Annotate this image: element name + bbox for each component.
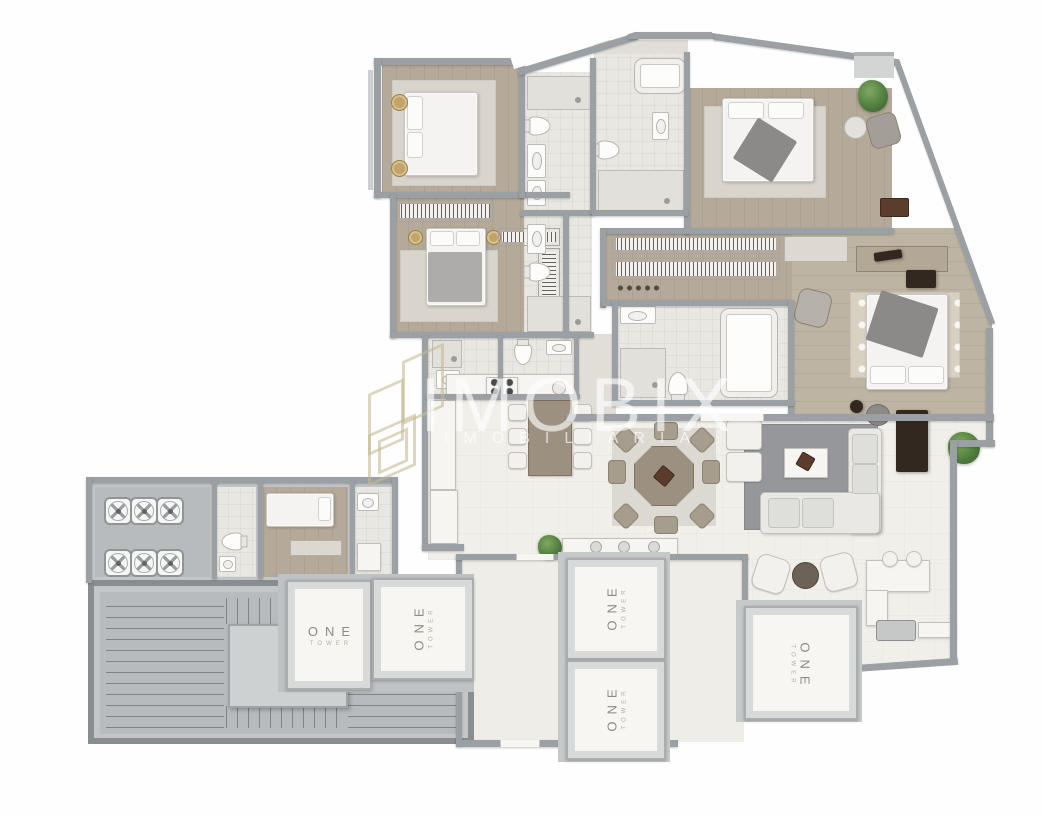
- sofa-cushion: [852, 464, 878, 494]
- bathtub: [634, 58, 686, 94]
- elevator-cabin: ONE TOWER: [744, 606, 858, 720]
- elevator-sublabel: TOWER: [428, 606, 434, 652]
- shoe-row: [616, 284, 660, 293]
- entry-door: [500, 740, 540, 747]
- wall: [374, 58, 381, 198]
- dining-chair: [702, 460, 720, 484]
- wall: [390, 194, 396, 338]
- wall: [374, 58, 526, 65]
- bbq-grill: [876, 620, 916, 641]
- sink: [546, 340, 572, 355]
- window-strip: [368, 70, 373, 190]
- ac-condenser: [156, 549, 184, 577]
- wall: [684, 52, 690, 234]
- washing-machine: [357, 543, 381, 571]
- elevator-cab: ONE TOWER: [381, 587, 465, 671]
- bathroom-vanity: [652, 112, 669, 140]
- wall: [350, 481, 355, 579]
- shower: [527, 296, 591, 332]
- wall: [628, 32, 718, 39]
- elevator-cabin: ONE TOWER: [566, 660, 666, 760]
- watermark-subtitle: IMOBILIÁRIA: [444, 430, 705, 448]
- wall: [600, 228, 606, 308]
- terrace-counter: [866, 560, 930, 592]
- elevator-label: ONE: [604, 581, 619, 637]
- bed-pillow: [728, 102, 764, 119]
- side-table: [844, 116, 867, 139]
- bed-pillow: [768, 102, 804, 119]
- wall: [520, 210, 594, 216]
- chair: [508, 452, 527, 469]
- elevator-sublabel: TOWER: [789, 640, 795, 686]
- bed-pillow: [430, 231, 454, 246]
- closet-rack: [612, 234, 780, 254]
- wall: [986, 328, 993, 446]
- bench: [290, 540, 342, 556]
- closet-rack: [612, 258, 780, 280]
- wall: [374, 192, 570, 198]
- elevator-cabin: ONE TOWER: [566, 558, 666, 660]
- wall: [590, 58, 596, 214]
- wall: [602, 228, 894, 234]
- bed-pillow: [318, 497, 331, 521]
- wall: [86, 477, 92, 583]
- floor-plan-canvas: ONE TOWER ONE TOWER ONE TOWER ONE TO: [0, 0, 1041, 816]
- elevator-label: ONE: [604, 682, 619, 738]
- shower: [527, 76, 591, 110]
- bathroom-vanity: [527, 224, 546, 254]
- sofa-cushion: [852, 434, 878, 464]
- double-vanity: [620, 306, 656, 324]
- stool: [882, 551, 898, 567]
- bed-blanket: [428, 252, 482, 302]
- wall: [422, 544, 464, 551]
- stool: [906, 551, 922, 567]
- ac-condenser: [156, 497, 184, 525]
- dining-chair: [608, 460, 626, 484]
- elevator-label: ONE: [411, 601, 426, 657]
- bed-pillow: [456, 231, 480, 246]
- armchair: [726, 452, 762, 482]
- nightstand-lamp: [391, 94, 408, 111]
- bed-pillow: [407, 96, 423, 130]
- sofa-cushion: [802, 498, 834, 528]
- elevator-label: ONE: [797, 635, 812, 691]
- ac-condenser: [130, 497, 158, 525]
- ac-condenser: [104, 497, 132, 525]
- dining-chair: [654, 516, 678, 534]
- elevator-sublabel: TOWER: [306, 641, 352, 647]
- bathroom-vanity: [527, 144, 546, 178]
- elevator-cabin: ONE TOWER: [286, 580, 372, 690]
- sofa-cushion: [768, 498, 800, 528]
- wall: [602, 300, 794, 306]
- nightstand-lamp: [408, 230, 423, 245]
- wall: [258, 481, 263, 579]
- plant: [858, 80, 888, 112]
- ac-condenser: [104, 549, 132, 577]
- bed-pillow: [407, 132, 423, 158]
- elevator-label: ONE: [301, 624, 357, 639]
- elevator-cab: ONE TOWER: [753, 615, 849, 711]
- wall: [563, 214, 569, 338]
- stairs-left: [106, 598, 224, 728]
- bed-pillow: [908, 366, 944, 384]
- elevator-cab: ONE TOWER: [575, 567, 657, 651]
- wall: [390, 332, 594, 338]
- terrace-table: [792, 562, 819, 589]
- elevator-cabin: ONE TOWER: [372, 578, 474, 680]
- sink: [219, 556, 236, 572]
- refrigerator: [430, 490, 458, 544]
- bed-pillow: [870, 366, 906, 384]
- closet-bench: [784, 236, 848, 262]
- wall: [788, 300, 794, 414]
- door: [516, 554, 554, 560]
- shower: [598, 170, 684, 212]
- elevator-cab: ONE TOWER: [575, 669, 657, 751]
- toilet: [222, 533, 245, 551]
- wardrobe-rack: [396, 200, 494, 222]
- wall: [592, 210, 688, 216]
- elevator-hall-floor: [666, 560, 744, 742]
- laundry-sink: [357, 493, 379, 511]
- side-table: [850, 400, 863, 413]
- stairs-bottom: [226, 706, 346, 728]
- balcony-floor: [854, 56, 894, 78]
- wall: [392, 477, 398, 583]
- elevator-cab: ONE TOWER: [295, 589, 363, 681]
- wall: [950, 440, 957, 672]
- elevator-sublabel: TOWER: [621, 586, 627, 632]
- nightstand-lamp: [391, 160, 408, 177]
- dresser: [906, 270, 936, 288]
- storage-trunk: [880, 198, 909, 217]
- desk: [856, 246, 948, 272]
- elevator-sublabel: TOWER: [621, 687, 627, 733]
- ac-condenser: [130, 549, 158, 577]
- chair: [573, 452, 592, 469]
- wall: [519, 58, 525, 198]
- exterior-mask: [856, 664, 969, 716]
- wall: [212, 481, 217, 579]
